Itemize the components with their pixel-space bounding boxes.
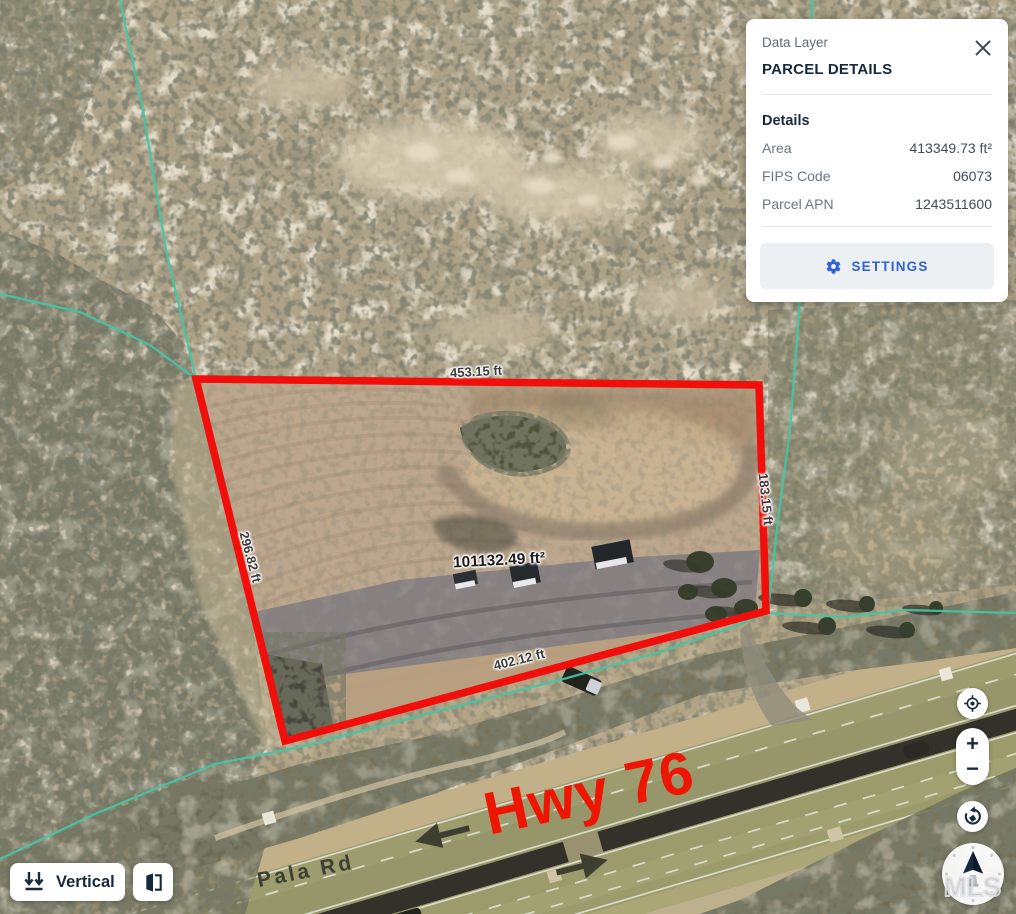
svg-text:453.15 ft: 453.15 ft [450, 363, 503, 381]
